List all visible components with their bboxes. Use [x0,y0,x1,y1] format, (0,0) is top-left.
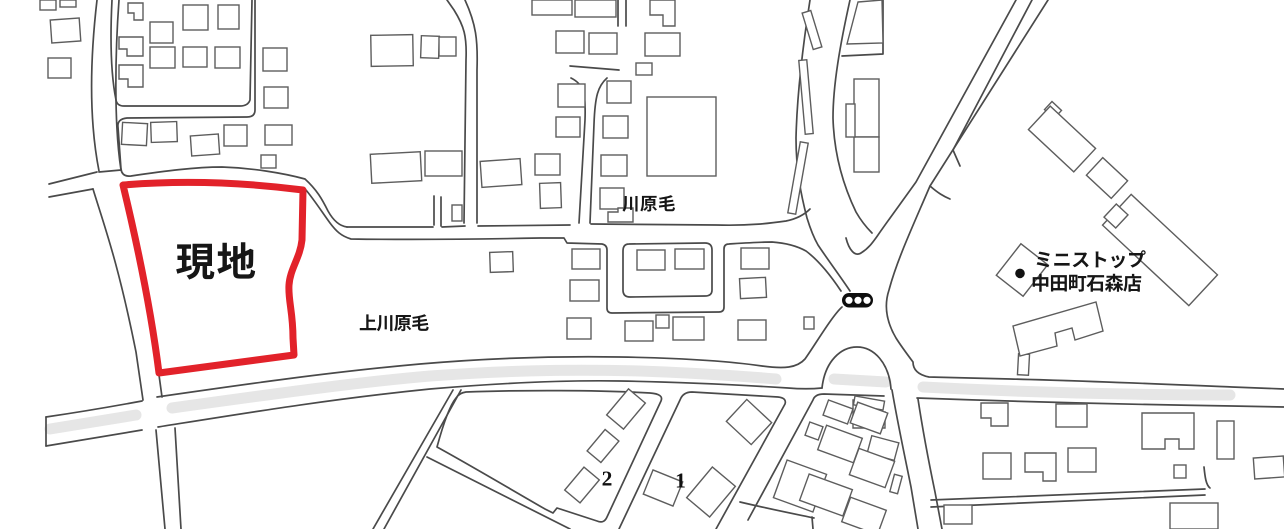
svg-text:2: 2 [602,467,613,491]
svg-text:1: 1 [675,469,686,493]
